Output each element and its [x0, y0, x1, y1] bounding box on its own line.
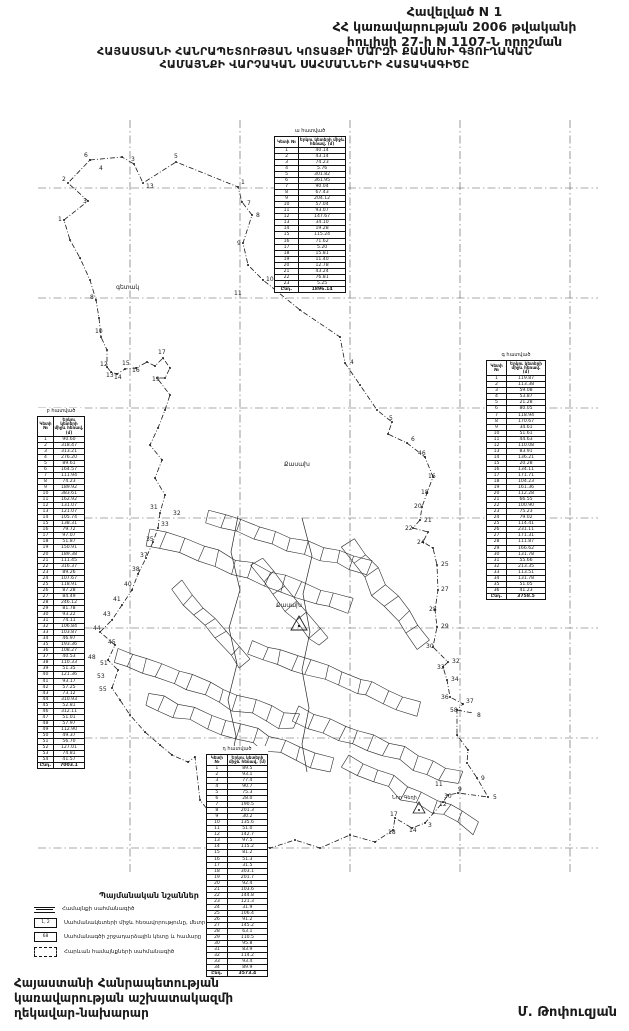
cadastral-parcels — [114, 510, 478, 835]
boundary-point-dot — [376, 409, 378, 411]
parcel-line — [146, 546, 348, 613]
parcel-line — [382, 743, 389, 755]
boundary-point-number: 38 — [132, 566, 140, 573]
parcel-line — [278, 650, 281, 665]
parcel-line — [305, 660, 311, 675]
boundary-point-dot — [121, 604, 123, 606]
boundary-point-dot — [237, 186, 239, 188]
parcel-line — [143, 658, 147, 673]
boundary-point-number: 2 — [62, 176, 66, 183]
parcel-line — [358, 680, 361, 694]
boundary-point-number: 11 — [435, 781, 443, 788]
parcel-line — [366, 682, 372, 695]
legend-title: Պայմանական նշաններ — [34, 891, 264, 900]
boundary-point-dot — [299, 309, 301, 311]
boundary-point-number: 28 — [429, 606, 437, 613]
parcel-line — [180, 538, 185, 552]
boundary-point-number: 14 — [114, 374, 122, 381]
boundary-point-dot — [187, 761, 189, 763]
boundary-point-dot — [146, 361, 148, 363]
parcel-line — [253, 700, 257, 713]
turning-point-symbol: 68 — [34, 932, 57, 942]
boundary-point-number: 13 — [146, 183, 154, 190]
parcel-line — [221, 721, 226, 735]
parcel-line — [473, 822, 478, 835]
boundary-point-dot — [119, 699, 121, 701]
parcel-line — [383, 691, 388, 704]
parcel-line — [341, 539, 354, 547]
table-left-grid: Կետի №Երկու կետերի միջև հեռավ. (մ)190.60… — [37, 416, 85, 769]
parcel-line — [114, 648, 118, 662]
boundary-point-dot — [456, 734, 458, 736]
boundary-point-number: 31 — [150, 504, 158, 511]
table-caption: ա հատված — [274, 128, 346, 134]
adjacent-boundary-symbol — [34, 947, 57, 957]
boundary-point-number: 11 — [234, 290, 242, 297]
parcel-line — [254, 527, 260, 539]
legend-item: Հարևան համայնքների սահմանագիծ — [34, 947, 264, 957]
parcel-line — [396, 697, 403, 710]
boundary-point-number: 12 — [439, 801, 447, 808]
parcel-line — [190, 707, 194, 719]
boundary-point-dot — [466, 762, 468, 764]
boundary-point-dot — [262, 279, 264, 281]
parcel-line — [205, 682, 210, 695]
boundary-point-number: 32 — [173, 510, 181, 517]
boundary-point-dot — [467, 749, 469, 751]
boundary-point-number: 36 — [441, 694, 449, 701]
boundary-point-dot — [159, 512, 161, 514]
distance-table-top: ա հատված Կետի №Երկու կետերի միջև հեռավ. … — [274, 128, 346, 293]
boundary-point-dot — [121, 156, 123, 158]
boundary-point-dot — [251, 214, 253, 216]
boundary-point-dot — [294, 839, 296, 841]
parcel-line — [339, 672, 342, 685]
parcel-line — [292, 721, 458, 783]
parcel-line — [266, 706, 271, 721]
parcel-line — [354, 539, 429, 640]
boundary-point-number: 37 — [140, 552, 148, 559]
place-name-label: Նոր Գեղի — [392, 795, 417, 801]
parcel-line — [330, 758, 334, 772]
boundary-point-number: 10 — [95, 328, 103, 335]
boundary-point-dot — [106, 349, 108, 351]
boundary-point-dot — [95, 299, 97, 301]
boundary-point-number: 20 — [414, 503, 422, 510]
boundary-point-dot — [447, 661, 449, 663]
legend-item: 68 Սահմանագծի շրջադարձային կետը և համարը — [34, 932, 264, 942]
parcel-line — [320, 548, 324, 561]
parcel-line — [339, 726, 346, 740]
boundary-point-dot — [436, 626, 438, 628]
boundary-point-dot — [344, 362, 346, 364]
boundary-point-dot — [142, 182, 144, 184]
boundary-point-number: 27 — [441, 586, 449, 593]
boundary-point-dot — [98, 317, 100, 319]
parcel-line — [281, 740, 286, 752]
boundary-point-dot — [374, 841, 376, 843]
boundary-point-dot — [154, 365, 156, 367]
boundary-point-dot — [129, 714, 131, 716]
boundary-point-number: 51 — [100, 660, 108, 667]
boundary-point-number: 17 — [158, 349, 166, 356]
parcel-line — [400, 746, 405, 759]
legend-item-label: Հարևան համայնքների սահմանագիծ — [64, 949, 174, 955]
parcel-line — [205, 619, 215, 626]
parcel-line — [248, 641, 253, 654]
boundary-point-number: 21 — [424, 517, 432, 524]
parcel-line — [155, 664, 162, 677]
boundary-point-dot — [427, 531, 429, 533]
boundary-point-dot — [157, 527, 159, 529]
boundary-point-number: 30 — [444, 793, 452, 800]
parcel-line — [367, 735, 373, 751]
parcel-line — [406, 625, 418, 633]
boundary-point-dot — [446, 679, 448, 681]
parcel-line — [194, 608, 203, 615]
parcel-line — [433, 801, 438, 814]
boundary-point-number: 1 — [241, 179, 245, 186]
boundary-point-dot — [199, 799, 201, 801]
parcel-line — [416, 792, 421, 802]
signatory-title-line: ղեկավար-նախարար — [14, 1006, 233, 1021]
signatory-title-line: կառավարության աշխատակազմի — [14, 991, 233, 1006]
boundary-point-dot — [124, 368, 126, 370]
parcel-line — [158, 696, 164, 711]
boundary-point-number: 16 — [132, 367, 140, 374]
boundary-point-number: 32 — [452, 658, 460, 665]
parcel-line — [215, 550, 219, 567]
boundary-point-number: 16 — [428, 473, 436, 480]
boundary-point-dot — [117, 669, 119, 671]
boundary-point-number: 9 — [237, 240, 241, 247]
parcel-line — [279, 713, 284, 729]
boundary-point-dot — [319, 847, 321, 849]
boundary-point-dot — [359, 384, 361, 386]
distance-table-left: բ հատված Կետի №Երկու կետերի միջև հեռավ. … — [37, 408, 85, 769]
boundary-point-dot — [159, 744, 161, 746]
boundary-spur — [457, 710, 473, 713]
parcel-line — [417, 702, 421, 716]
boundary-point-number: 4 — [350, 359, 354, 366]
parcel-line — [173, 704, 178, 717]
scanned-map-document: Հավելված N 1 ՀՀ կառավարության 2006 թվակա… — [0, 0, 629, 1031]
boundary-point-dot — [449, 696, 451, 698]
parcel-line — [309, 628, 321, 638]
boundary-point-number: 33 — [161, 521, 169, 528]
parcel-line — [374, 770, 378, 782]
boundary-point-number: 30 — [426, 643, 434, 650]
legend-item: Համայնքի սահմանագիծ — [34, 905, 264, 913]
boundary-point-dot — [436, 564, 438, 566]
legend-item-label: Սահմանագծի շրջադարձային կետը և համարը — [64, 934, 201, 940]
table-caption: գ հատված — [486, 352, 546, 358]
boundary-point-dot — [349, 834, 351, 836]
legend-item-label: Համայնքի սահմանագիծ — [62, 906, 134, 912]
parcel-line — [206, 510, 209, 523]
settlement-center-dot — [298, 625, 300, 627]
boundary-point-dot — [133, 163, 135, 165]
parcel-line — [292, 656, 298, 671]
boundary-point-number: 15 — [122, 360, 130, 367]
parcel-line — [253, 728, 258, 742]
boundary-point-number: 3 — [131, 156, 135, 163]
boundary-point-number: 3 — [428, 822, 432, 829]
boundary-point-number: 33 — [437, 664, 445, 671]
settlement-center-dot — [418, 809, 420, 811]
parcel-line — [251, 558, 263, 565]
boundary-point-dot — [164, 377, 166, 379]
boundary-point-dot — [424, 822, 426, 824]
map-legend: Պայմանական նշաններ Համայնքի սահմանագիծ 1… — [34, 891, 264, 961]
boundary-point-number: 58 — [450, 707, 458, 714]
table-caption: բ հատված — [37, 408, 85, 414]
boundary-point-dot — [154, 477, 156, 479]
table-right-grid: Կետի №Երկու կետերի միջև հեռավ. (մ)1119.8… — [486, 360, 546, 600]
parcel-line — [413, 756, 418, 771]
parcel-line — [150, 529, 353, 598]
boundary-point-number: 45 — [108, 639, 116, 646]
boundary-point-number: 5 — [174, 153, 178, 160]
boundary-point-number: 6 — [411, 436, 415, 443]
boundary-point-dot — [63, 219, 65, 221]
signatory-title: Հայաստանի Հանրապետության կառավարության ա… — [14, 976, 233, 1021]
parcel-line — [146, 693, 149, 705]
parcel-line — [353, 731, 358, 744]
parcel-line — [310, 753, 315, 768]
boundary-point-number: 53 — [97, 673, 105, 680]
parcel-line — [172, 580, 182, 589]
parcel-line — [316, 590, 321, 603]
boundary-point-number: 19 — [152, 376, 160, 383]
boundary-point-number: 35 — [146, 536, 154, 543]
parcel-line — [160, 532, 167, 548]
boundary-point-dot — [69, 239, 71, 241]
boundary-point-dot — [169, 367, 171, 369]
boundary-point-number: 24 — [417, 539, 425, 546]
boundary-point-dot — [157, 427, 159, 429]
boundary-point-number: 9 — [458, 786, 462, 793]
legend-item-label: Սահմանակետերի միջև հեռավորությունը, մետր — [64, 920, 205, 926]
boundary-point-dot — [149, 444, 151, 446]
parcel-line — [337, 550, 340, 562]
parcel-line — [263, 647, 268, 659]
place-name-label: գետակ — [116, 284, 139, 291]
parcel-line — [248, 654, 417, 716]
table-caption: դ հատված — [206, 746, 268, 752]
parcel-line — [458, 771, 463, 783]
boundary-line-symbol — [34, 907, 55, 913]
table-total-row: Ընդ.3758.5 — [487, 593, 546, 599]
boundary-point-dot — [487, 796, 489, 798]
boundary-point-number: 14 — [409, 827, 417, 834]
boundary-point-number: 10 — [266, 276, 274, 283]
boundary-point-number: 8 — [256, 212, 260, 219]
parcel-line — [239, 659, 250, 668]
boundary-point-number: 37 — [466, 698, 474, 705]
boundary-point-dot — [164, 494, 166, 496]
legend-item: 1, 2 Սահմանակետերի միջև հեռավորությունը,… — [34, 918, 264, 928]
parcel-line — [296, 747, 299, 760]
boundary-point-dot — [137, 573, 139, 575]
boundary-point-dot — [89, 159, 91, 161]
parcel-line — [183, 595, 192, 605]
parcel-line — [299, 706, 463, 771]
boundary-point-number: 5 — [493, 794, 497, 801]
parcel-line — [427, 761, 433, 775]
parcel-line — [232, 695, 237, 711]
distance-table-right: գ հատված Կետի №Երկու կետերի միջև հեռավ. … — [486, 352, 546, 600]
boundary-point-number: 40 — [124, 581, 132, 588]
boundary-point-number: 43 — [103, 611, 111, 618]
boundary-point-number: 6 — [84, 152, 88, 159]
parcel-line — [198, 546, 204, 561]
internal-line — [302, 518, 312, 772]
boundary-point-dot — [79, 257, 81, 259]
boundary-point-dot — [387, 433, 389, 435]
boundary-point-number: 7 — [247, 200, 251, 207]
parcel-line — [272, 531, 275, 543]
parcel-line — [221, 515, 226, 528]
boundary-point-number: 5 — [389, 415, 393, 422]
boundary-point-dot — [131, 589, 133, 591]
parcel-line — [323, 719, 330, 733]
parcel-line — [399, 611, 410, 621]
boundary-point-dot — [164, 409, 166, 411]
parcel-line — [308, 714, 314, 728]
parcel-line — [118, 648, 300, 713]
parcel-line — [231, 647, 239, 656]
distance-number-symbol: 1, 2 — [34, 918, 57, 928]
parcel-line — [341, 755, 349, 767]
boundary-point-dot — [247, 264, 249, 266]
boundary-point-dot — [87, 200, 89, 202]
boundary-point-dot — [100, 336, 102, 338]
boundary-point-dot — [144, 731, 146, 733]
boundary-point-number: 22 — [405, 525, 413, 532]
boundary-point-number: 12 — [100, 361, 108, 368]
table-total-row: Ընդ.7003.1 — [38, 763, 85, 769]
boundary-point-dot — [242, 242, 244, 244]
boundary-point-dot — [169, 394, 171, 396]
boundary-point-dot — [171, 754, 173, 756]
parcel-line — [389, 775, 394, 786]
table-top-grid: Կետի №Երկու կետերի միջև հեռավ. (մ)140.14… — [274, 136, 346, 293]
boundary-point-number: 46 — [418, 450, 426, 457]
place-name-label: Քասախ — [276, 602, 302, 609]
parcel-line — [365, 568, 378, 577]
parcel-line — [348, 598, 353, 613]
boundary-point-dot — [194, 756, 196, 758]
place-name-label: Քասախ — [284, 461, 310, 468]
signatory-name: Մ. Թոփուզյան — [518, 1005, 617, 1020]
boundary-point-dot — [161, 459, 163, 461]
parcel-line — [186, 674, 192, 689]
boundary-point-number: 4 — [99, 165, 103, 172]
signatory-title-line: Հայաստանի Հանրապետության — [14, 976, 233, 991]
boundary-point-dot — [476, 777, 478, 779]
boundary-point-number: 41 — [113, 596, 121, 603]
boundary-point-dot — [269, 847, 271, 849]
parcel-line — [357, 764, 363, 776]
parcel-line — [208, 715, 212, 729]
boundary-point-number: 3 — [83, 198, 87, 205]
table-total-row: Ընդ.1896.14 — [275, 286, 346, 292]
boundary-point-number: 8 — [90, 294, 94, 301]
boundary-point-number: 29 — [441, 623, 449, 630]
boundary-point-number: 1 — [58, 216, 62, 223]
parcel-line — [354, 555, 365, 563]
boundary-point-number: 13 — [106, 372, 114, 379]
parcel-line — [215, 631, 226, 638]
boundary-point-number: 55 — [99, 686, 107, 693]
boundary-point-number: 48 — [88, 654, 96, 661]
boundary-point-number: 17 — [390, 811, 398, 818]
boundary-point-number: 25 — [441, 561, 449, 568]
parcel-line — [384, 596, 398, 606]
parcel-line — [287, 538, 291, 551]
boundary-point-dot — [241, 201, 243, 203]
parcel-line — [294, 582, 301, 598]
boundary-point-number: 18 — [388, 829, 396, 836]
boundary-point-dot — [462, 703, 464, 705]
boundary-point-number: 9 — [481, 775, 485, 782]
boundary-point-dot — [432, 547, 434, 549]
parcel-line — [219, 690, 223, 703]
parcel-line — [304, 541, 308, 554]
parcel-line — [325, 665, 328, 679]
parcel-line — [281, 575, 286, 592]
parcel-line — [439, 768, 446, 780]
boundary-point-dot — [339, 336, 341, 338]
parcel-line — [372, 585, 386, 596]
parcel-line — [329, 593, 333, 606]
boundary-point-dot — [89, 279, 91, 281]
boundary-point-dot — [406, 442, 408, 444]
parcel-line — [264, 571, 273, 582]
parcel-line — [174, 671, 179, 684]
parcel-line — [114, 662, 293, 728]
boundary-point-dot — [111, 619, 113, 621]
parcel-line — [252, 641, 420, 702]
boundary-point-number: 8 — [477, 712, 481, 719]
boundary-point-dot — [419, 519, 421, 521]
boundary-point-number: 34 — [451, 676, 459, 683]
boundary-point-dot — [67, 182, 69, 184]
boundary-point-number: 44 — [93, 625, 101, 632]
boundary-point-dot — [162, 357, 164, 359]
boundary-point-number: 18 — [421, 489, 429, 496]
boundary-point-dot — [437, 589, 439, 591]
boundary-point-dot — [175, 161, 177, 163]
parcel-line — [319, 638, 328, 645]
boundary-point-dot — [111, 687, 113, 689]
